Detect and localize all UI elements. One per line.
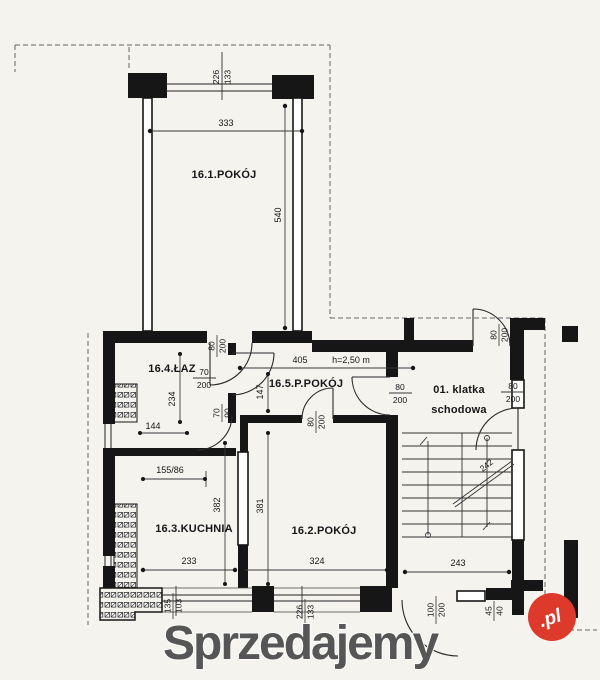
dim-right-door-num: 80: [508, 381, 518, 391]
dim-kitchen-depth: 382: [212, 497, 222, 512]
watermark-text: Sprzedajemy: [163, 617, 439, 670]
dim-stair-door-num: 80: [395, 382, 405, 392]
dim-top-window: 226 133: [211, 70, 233, 84]
dim-top-width: 333: [218, 118, 233, 128]
dim-hall-depth: 147: [255, 384, 265, 399]
dim-bath-hatch-den: 90: [223, 408, 233, 418]
dim-top-right-door-den: 200: [500, 328, 510, 342]
dim-kitchen-width: 233: [181, 556, 196, 566]
dim-bath-door-num: 70: [199, 367, 209, 377]
dim-top-window-num: 226: [211, 70, 221, 84]
dim-top-right-door-num: 80: [489, 330, 499, 340]
floor-plan: 16.1.POKÓJ 16.4.ŁAZ 16.5.P.POKÓJ 01. kla…: [0, 0, 600, 680]
dim-bottom-left-window-den: 103: [174, 599, 184, 613]
dim-entrance-door-den: 200: [437, 603, 447, 617]
room-label-16-2-pokoj: 16.2.POKÓJ: [292, 524, 357, 537]
dim-room2-door-den: 200: [317, 415, 327, 429]
dim-room2-width: 324: [309, 556, 324, 566]
dim-bath-hatch-num: 70: [212, 408, 222, 418]
room-label-klatka-line1: 01. klatka: [433, 384, 485, 396]
dim-hall-top-door-num: 80: [207, 341, 217, 351]
dim-stair-width: 243: [450, 558, 465, 568]
dim-top-window-den: 133: [223, 70, 233, 84]
dim-bath-width: 144: [145, 421, 160, 431]
dim-entrance-door-num: 100: [426, 603, 436, 617]
dim-right-door-den: 200: [506, 394, 520, 404]
dim-room1-height: 540: [273, 207, 283, 222]
room-label-16-5-p-pokoj: 16.5.P.POKÓJ: [269, 377, 343, 390]
dim-bath-door-den: 200: [197, 380, 211, 390]
dim-hall-width: 405: [292, 355, 307, 365]
floor-plan-page: 16.1.POKÓJ 16.4.ŁAZ 16.5.P.POKÓJ 01. kla…: [0, 0, 600, 680]
dim-bath-depth: 234: [167, 391, 177, 406]
dim-hall-top-door-den: 200: [218, 339, 228, 353]
dim-vent-den: 40: [495, 606, 505, 616]
room-label-16-3-kuchnia: 16.3.KUCHNIA: [155, 523, 233, 535]
room-label-klatka-line2: schodowa: [431, 404, 487, 416]
room-label-16-4-laz: 16.4.ŁAZ: [148, 363, 196, 375]
dim-vent-num: 45: [484, 606, 494, 616]
dim-kitchen-opening: 155/86: [156, 465, 184, 475]
dim-stair-door-den: 200: [393, 395, 407, 405]
dim-ceiling-height: h=2,50 m: [332, 355, 370, 365]
dim-room2-door-num: 80: [306, 417, 316, 427]
dim-room2-depth: 381: [255, 498, 265, 513]
room-label-16-1-pokoj: 16.1.POKÓJ: [192, 168, 257, 181]
dim-bottom-left-window-num: 135: [163, 599, 173, 613]
